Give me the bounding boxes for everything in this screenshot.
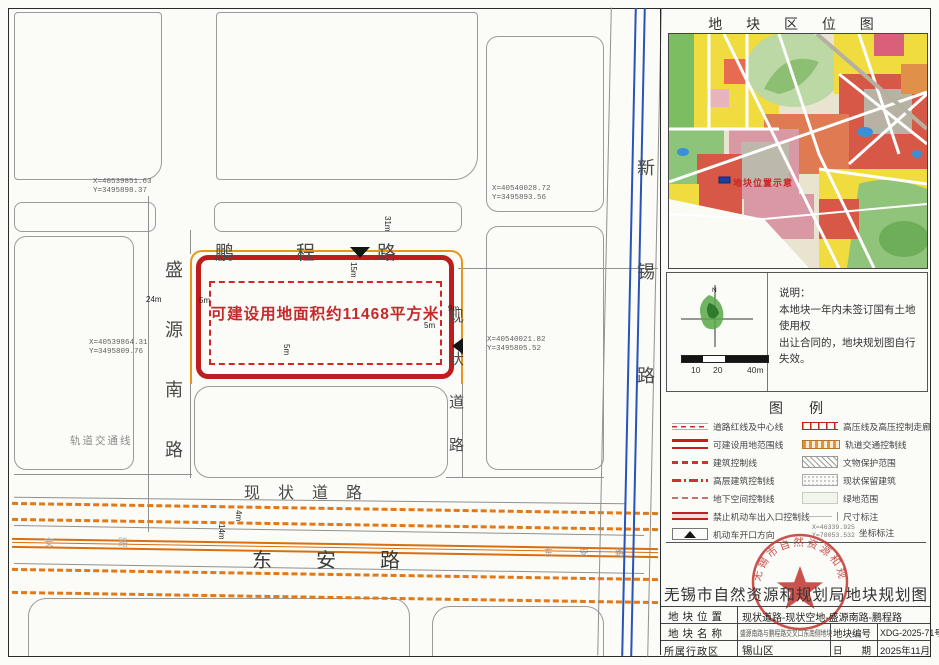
parcel-location-marker [719, 177, 730, 183]
legend-label: 高层建筑控制线 [713, 474, 775, 487]
road-edge [190, 382, 191, 478]
dim-label: 4m [234, 510, 243, 521]
parcel-location-label: 地块位置示意 [733, 177, 793, 188]
note-title: 说明： [779, 285, 924, 302]
road-label-xianzhuang-h: 现状道路 [244, 479, 380, 503]
road-label-pengcheng: 鹏程路 [215, 238, 458, 265]
legend-label: 道路红线及中心线 [713, 420, 783, 433]
road-label-dongan-small: 东 安 路 [544, 546, 636, 559]
legend-label: 地下空间控制线 [713, 492, 775, 505]
dim-label: 5m [282, 344, 291, 355]
table-line [661, 606, 930, 607]
parcel-name-value: 盛源南路与鹏程路交叉口东南侧地块 [740, 628, 832, 639]
note-line: 出让合同的，地块规划图自行失效。 [779, 335, 924, 368]
parcel-code-label: 地块编号 [833, 626, 871, 640]
city-block [14, 12, 162, 180]
dim-label: 5m [199, 296, 210, 305]
legend-vehicle-opening-icon [672, 528, 708, 540]
rail-control-line [12, 502, 658, 515]
legend-label: 轨道交通控制线 [845, 438, 907, 451]
legend-label: 可建设用地范围线 [713, 438, 783, 451]
road-label-dongan: 东安路 [252, 544, 444, 573]
city-block [14, 202, 156, 232]
dim-label: 14m [217, 524, 226, 540]
plan-sheet: 可建设用地面积约11468平方米 31m 15m 24m 5m 5m 9m 5m… [0, 0, 939, 665]
city-block [214, 202, 462, 232]
location-map: 地块位置示意 [668, 33, 928, 269]
city-block [28, 598, 410, 656]
rail-control-line [12, 518, 658, 531]
scale-bar [681, 355, 769, 363]
legend-label: 文物保护范围 [843, 456, 896, 469]
legend-hv-line-icon [802, 422, 838, 430]
legend-road-redline-icon [672, 423, 708, 430]
scale-tick-10: 10 [691, 365, 700, 375]
legend-title: 图例 [666, 398, 926, 418]
scale-tick-20: 20 [713, 365, 722, 375]
road-edge [148, 196, 149, 532]
table-line [877, 623, 878, 657]
date-label: 日 期 [833, 643, 871, 657]
note-text: 说明： 本地块一年内未签订国有土地使用权 出让合同的，地块规划图自行失效。 [779, 285, 924, 368]
road-label-anlu-faint: 安路 [44, 534, 192, 549]
legend-no-entry-icon [672, 512, 708, 520]
legend-label: 坐标标注 [859, 526, 894, 539]
road-label-shengyuan: 盛源南路 [160, 260, 186, 500]
dim-label: 31m [383, 216, 392, 232]
xinxi-road-lines [583, 7, 677, 657]
district-value: 锡山区 [742, 643, 774, 658]
north-n-label: N [712, 287, 717, 294]
legend-label: 建筑控制线 [713, 456, 757, 469]
coordinate-label: X=40539851.63Y=3495898.37 [93, 178, 152, 196]
city-block [432, 606, 604, 656]
location-map-title: 地 块 区 位 图 [664, 14, 928, 34]
legend-green-space-icon [802, 492, 838, 504]
legend-building-control-icon [672, 461, 708, 464]
parcel-name-label: 地块名称 [668, 626, 726, 641]
parcel-code-value: XDG-2025-71号 [880, 626, 939, 639]
road-label-xinxi: 新锡路 [632, 158, 658, 470]
parcel-location-row-value: 现状道路-现状空地-盛源南路-鹏程路 [742, 609, 902, 624]
coordinate-label: X=40540028.72Y=3495893.56 [492, 185, 551, 203]
legend-dimension-icon [802, 512, 838, 521]
legend-label: 现状保留建筑 [843, 474, 896, 487]
legend-rail-control-icon [802, 440, 840, 449]
legend: 图例 道路红线及中心线 可建设用地范围线 建筑控制线 高层建筑控制线 地下空间控… [666, 392, 926, 543]
legend-label: 禁止机动车出入口控制线 [713, 510, 810, 523]
parcel-location-row-label: 地块位置 [668, 609, 726, 624]
legend-relic-protection-icon [802, 456, 838, 468]
note-box-divider [767, 273, 768, 391]
note-line: 本地块一年内未签订国有土地使用权 [779, 302, 924, 335]
coordinate-label: X=40540021.82Y=3495805.52 [487, 336, 546, 354]
rail-line-label: 轨道交通线 [70, 433, 133, 448]
note-box: N 10 20 40m 说明： 本地块一年内未签订国有土地使用权 出让合同的，地… [666, 272, 928, 392]
coordinate-label: X=40539864.31Y=3495809.76 [89, 339, 148, 357]
city-block [216, 12, 478, 180]
panel-divider [660, 8, 661, 655]
date-value: 2025年11月 [880, 643, 930, 657]
road-edge [446, 477, 604, 478]
dim-label: 5m [424, 321, 435, 330]
legend-label: 尺寸标注 [843, 510, 878, 523]
district-label: 所属行政区 [664, 643, 719, 658]
legend-label: 高压线及高压控制走廊 [843, 420, 931, 433]
city-block [194, 386, 448, 478]
scale-tick-40m: 40m [747, 365, 764, 375]
road-label-xianzhuang-v: 现状道路 [445, 308, 466, 480]
north-arrow: N [679, 283, 755, 349]
legend-underground-control-icon [672, 497, 708, 499]
legend-highrise-control-icon [672, 479, 708, 482]
legend-retained-building-icon [802, 474, 838, 486]
road-edge [190, 230, 191, 254]
table-line [737, 606, 738, 657]
legend-buildable-line-icon [672, 439, 708, 449]
legend-label: 绿地范围 [843, 492, 878, 505]
parcel-area-label: 可建设用地面积约11468平方米 [200, 302, 450, 324]
sheet-title: 无锡市自然资源和规划局地块规划图 [662, 583, 930, 605]
